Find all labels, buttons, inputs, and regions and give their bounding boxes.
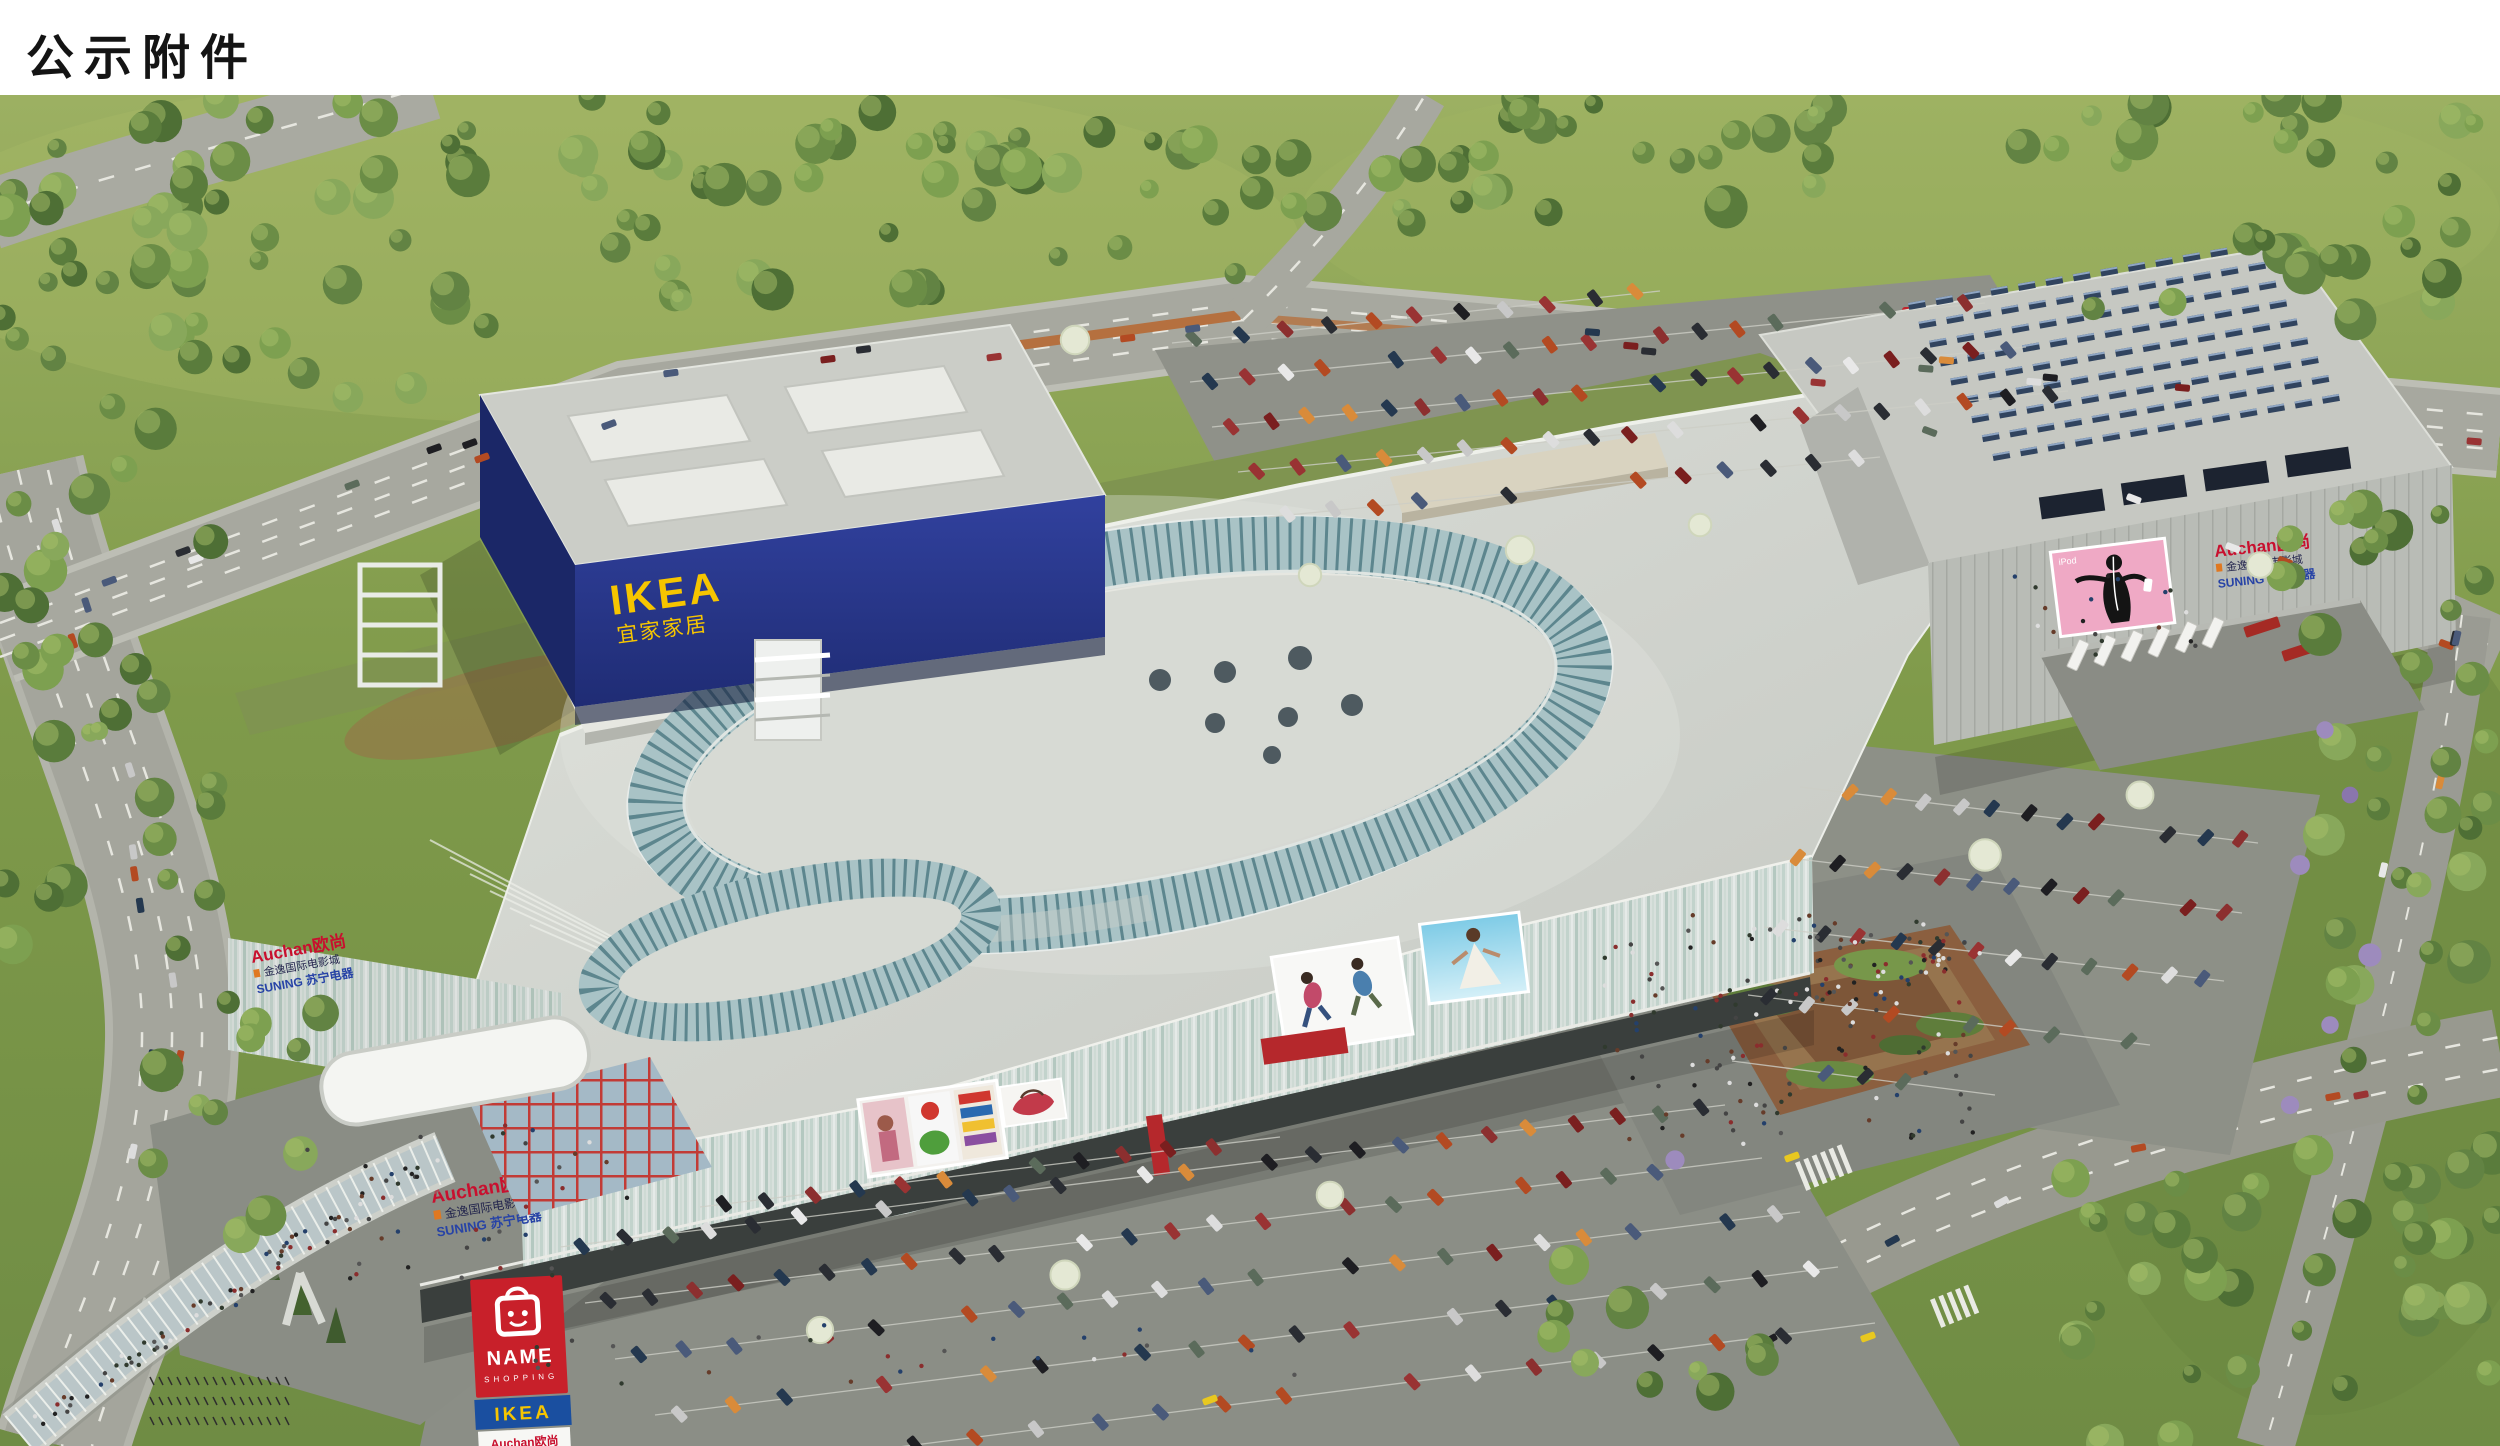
person — [2184, 610, 2188, 614]
tree-highlight — [2053, 1161, 2074, 1182]
billboard-ipod: iPod — [2050, 538, 2175, 636]
person — [276, 1261, 280, 1265]
person — [1728, 988, 1732, 992]
car — [1939, 356, 1955, 364]
person — [1960, 1120, 1964, 1124]
tree-highlight — [1305, 194, 1327, 216]
tree-highlight — [2086, 1302, 2097, 1313]
person — [1718, 1063, 1722, 1067]
person — [487, 1237, 491, 1241]
person — [208, 1301, 212, 1305]
person — [1714, 998, 1718, 1002]
tree-highlight — [1698, 1375, 1719, 1396]
tree-highlight — [2408, 1086, 2419, 1097]
person — [1805, 987, 1809, 991]
person — [1852, 980, 1856, 984]
tree-highlight — [648, 102, 661, 115]
person — [288, 1245, 292, 1249]
blossom-tree — [1299, 564, 1321, 586]
person — [119, 1354, 123, 1358]
person — [919, 1364, 923, 1368]
tree-highlight — [2484, 1207, 2499, 1222]
tree-highlight — [2165, 1172, 2179, 1186]
person — [536, 1366, 540, 1370]
person — [1914, 920, 1918, 924]
tree-highlight — [133, 246, 155, 268]
tree-highlight — [51, 239, 66, 254]
person — [1827, 990, 1831, 994]
person — [1792, 938, 1796, 942]
person — [1867, 1118, 1871, 1122]
person — [1731, 1128, 1735, 1132]
tree-highlight — [101, 395, 115, 409]
person — [185, 1328, 189, 1332]
person — [1953, 1042, 1957, 1046]
tree-highlight — [14, 643, 29, 658]
person — [1711, 940, 1715, 944]
tree-highlight — [1804, 144, 1822, 162]
person — [1629, 942, 1633, 946]
tree-highlight — [224, 347, 240, 363]
car — [1585, 328, 1601, 336]
person — [1820, 983, 1824, 987]
person — [62, 1395, 66, 1399]
tree-highlight — [2385, 1164, 2401, 1180]
person — [1738, 1099, 1742, 1103]
person — [1815, 935, 1819, 939]
tree-highlight — [2432, 506, 2442, 516]
person — [33, 1414, 37, 1418]
person — [65, 1409, 69, 1413]
person — [1783, 1046, 1787, 1050]
tree-highlight — [2466, 115, 2476, 125]
tree-highlight — [31, 193, 50, 212]
person — [68, 1403, 72, 1407]
tree-highlight — [2333, 1377, 2347, 1391]
person — [1820, 997, 1824, 1001]
person — [358, 1202, 362, 1206]
tree-highlight — [2090, 1214, 2100, 1224]
tree-highlight — [449, 156, 473, 180]
car — [2466, 437, 2482, 445]
tree-highlight — [159, 870, 171, 882]
person — [415, 1166, 419, 1170]
person — [2100, 639, 2104, 643]
tree-highlight — [938, 136, 948, 146]
person — [1733, 1002, 1737, 1006]
purple-shrub — [2342, 787, 2359, 804]
tree-highlight — [1473, 176, 1493, 196]
tree-highlight — [225, 1218, 245, 1238]
tree-highlight — [2159, 1422, 2179, 1442]
person — [1874, 1096, 1878, 1100]
tree-highlight — [2408, 873, 2422, 887]
person — [103, 1371, 107, 1375]
person — [1692, 1083, 1696, 1087]
tree-highlight — [618, 210, 630, 222]
person — [1762, 1103, 1766, 1107]
tree-highlight — [967, 132, 985, 150]
aerial-rendering: Auchan欧尚 金逸国际电影城 SUNING 苏宁电器 Auchan欧尚 金逸… — [0, 95, 2500, 1446]
tree-highlight — [671, 290, 683, 302]
person — [1946, 1051, 1950, 1055]
tree-highlight — [1723, 122, 1739, 138]
tree-highlight — [1141, 181, 1151, 191]
pylon-tenant-ikea: IKEA — [494, 1402, 552, 1426]
person — [625, 1196, 629, 1200]
person — [808, 1338, 812, 1342]
person — [1752, 927, 1756, 931]
person — [324, 1222, 328, 1226]
person — [1138, 1327, 1142, 1331]
tree-highlight — [656, 256, 671, 271]
person — [1848, 1024, 1852, 1028]
tree-highlight — [1282, 194, 1297, 209]
person — [1921, 922, 1925, 926]
person — [1727, 1081, 1731, 1085]
person — [239, 1293, 243, 1297]
tree-highlight — [1393, 200, 1404, 211]
person — [1691, 913, 1695, 917]
person — [573, 1152, 577, 1156]
tree-highlight — [977, 147, 1000, 170]
person — [1082, 1336, 1086, 1340]
tree-highlight — [1547, 1301, 1562, 1316]
person — [523, 1141, 527, 1145]
tree-highlight — [1440, 153, 1457, 170]
person — [1947, 957, 1951, 961]
person — [474, 1228, 478, 1232]
tree-highlight — [2285, 254, 2309, 278]
person — [2093, 632, 2097, 636]
person — [1734, 1016, 1738, 1020]
tree-highlight — [362, 157, 383, 178]
purple-shrub — [2281, 1096, 2299, 1114]
person — [137, 1352, 141, 1356]
tree-highlight — [1009, 129, 1021, 141]
tree-highlight — [561, 137, 583, 159]
tree-highlight — [2244, 103, 2255, 114]
tree-highlight — [1109, 236, 1123, 250]
tree-highlight — [1401, 148, 1421, 168]
person — [1941, 939, 1945, 943]
person — [354, 1272, 358, 1276]
person — [282, 1244, 286, 1248]
person — [360, 1194, 364, 1198]
person — [1941, 956, 1945, 960]
person — [523, 1233, 527, 1237]
person — [403, 1166, 407, 1170]
tree-highlight — [204, 1101, 218, 1115]
person — [1759, 1043, 1763, 1047]
person — [155, 1345, 159, 1349]
tree-highlight — [361, 101, 382, 122]
person — [303, 1229, 307, 1233]
tree-highlight — [1573, 1350, 1588, 1365]
tree-highlight — [2224, 1194, 2246, 1216]
tree-highlight — [261, 329, 278, 346]
person — [1836, 984, 1840, 988]
person — [305, 1148, 309, 1152]
person — [1729, 1049, 1733, 1053]
tree-highlight — [475, 315, 489, 329]
tree-highlight — [1243, 147, 1259, 163]
person — [250, 1289, 254, 1293]
tree-highlight — [325, 267, 347, 289]
person — [942, 1349, 946, 1353]
tree-highlight — [2449, 854, 2471, 876]
person — [1640, 1054, 1644, 1058]
person — [410, 1172, 414, 1176]
person — [1635, 1028, 1639, 1032]
tree-highlight — [2441, 105, 2461, 125]
person — [369, 1177, 373, 1181]
tree-highlight — [122, 655, 140, 673]
person — [1905, 978, 1909, 982]
person — [2036, 624, 2040, 628]
person — [1603, 956, 1607, 960]
tree-highlight — [285, 1138, 304, 1157]
tree-highlight — [252, 225, 268, 241]
person — [357, 1262, 361, 1266]
person — [1660, 986, 1664, 990]
person — [1779, 1100, 1783, 1104]
blossom-tree — [1506, 536, 1534, 564]
person — [228, 1288, 232, 1292]
person — [1874, 992, 1878, 996]
person — [1971, 1130, 1975, 1134]
person — [1745, 978, 1749, 982]
person — [822, 1323, 826, 1327]
person — [137, 1363, 141, 1367]
person — [1945, 932, 1949, 936]
tree-highlight — [1699, 146, 1712, 159]
person — [1690, 1063, 1694, 1067]
person — [1718, 994, 1722, 998]
person — [85, 1394, 89, 1398]
tree-highlight — [251, 252, 261, 262]
tree-highlight — [190, 1095, 202, 1107]
tree-highlight — [2377, 153, 2389, 165]
person — [1794, 992, 1798, 996]
person — [898, 1369, 902, 1373]
tree-highlight — [145, 824, 164, 843]
person — [1741, 1054, 1745, 1058]
person — [1741, 1142, 1745, 1146]
tree-highlight — [290, 359, 308, 377]
person — [557, 1165, 561, 1169]
tree-highlight — [2062, 1326, 2082, 1346]
tree-highlight — [2367, 747, 2382, 762]
tree-highlight — [754, 271, 777, 294]
person — [2157, 625, 2161, 629]
person — [379, 1236, 383, 1240]
tree-highlight — [1586, 96, 1596, 106]
tree-highlight — [1399, 210, 1414, 225]
tree-highlight — [2008, 131, 2027, 150]
tree-highlight — [821, 119, 833, 131]
person — [367, 1217, 371, 1221]
person — [550, 1266, 554, 1270]
person — [991, 1337, 995, 1341]
tree-highlight — [180, 342, 199, 361]
person — [389, 1172, 393, 1176]
tree-highlight — [2478, 1362, 2492, 1376]
person — [1884, 962, 1888, 966]
person — [279, 1249, 283, 1253]
tree-highlight — [218, 992, 231, 1005]
person — [707, 1370, 711, 1374]
tree-highlight — [7, 492, 21, 506]
tree-highlight — [2475, 730, 2488, 743]
person — [1750, 937, 1754, 941]
purple-shrub — [2358, 943, 2381, 966]
pylon-brand: NAME — [486, 1345, 554, 1370]
person — [2189, 639, 2193, 643]
person — [279, 1253, 283, 1257]
blossom-tree — [1969, 839, 2001, 871]
person — [333, 1229, 337, 1233]
tree-highlight — [2441, 601, 2453, 613]
tree-highlight — [2045, 137, 2059, 151]
pylon-sign-main: NAME SHOPPING IKEA Auchan欧尚 金逸国际电影城 SUNI… — [468, 1275, 575, 1446]
blossom-tree — [2247, 552, 2273, 578]
person — [99, 1382, 103, 1386]
tree-highlight — [2118, 120, 2142, 144]
tree-highlight — [80, 624, 99, 643]
tree-highlight — [1145, 133, 1155, 143]
tree-highlight — [796, 165, 812, 181]
tree-highlight — [172, 168, 193, 189]
person — [611, 1344, 615, 1348]
tree-highlight — [2394, 1256, 2407, 1269]
tree-highlight — [2442, 219, 2459, 236]
person — [1631, 999, 1635, 1003]
car — [2043, 373, 2059, 381]
person — [1936, 953, 1940, 957]
tree-highlight — [48, 140, 59, 151]
tree-highlight — [169, 213, 192, 236]
person — [2089, 597, 2093, 601]
blossom-tree — [1317, 1182, 1344, 1209]
person — [535, 1179, 539, 1183]
tree-highlight — [1182, 127, 1203, 148]
person — [110, 1378, 114, 1382]
person — [2033, 585, 2037, 589]
tree-highlight — [1371, 157, 1391, 177]
tree-highlight — [631, 133, 649, 151]
tree-highlight — [2326, 919, 2344, 937]
tree-highlight — [71, 476, 94, 499]
person — [849, 1379, 853, 1383]
car — [2175, 384, 2191, 392]
blossom-tree — [1061, 326, 1089, 354]
person — [168, 1338, 172, 1342]
person — [232, 1288, 236, 1292]
person — [1848, 1002, 1852, 1006]
person — [886, 1354, 890, 1358]
person — [161, 1334, 165, 1338]
tree-highlight — [1551, 1247, 1573, 1269]
person — [325, 1240, 329, 1244]
person — [2163, 590, 2167, 594]
tree-highlight — [2393, 1200, 2414, 1221]
tree-highlight — [137, 410, 160, 433]
tree-highlight — [140, 1150, 156, 1166]
tree-highlight — [40, 274, 51, 285]
person — [1627, 1137, 1631, 1141]
tree-highlight — [1608, 1288, 1632, 1312]
tree-highlight — [2450, 943, 2474, 967]
tree-highlight — [63, 262, 77, 276]
person — [2193, 644, 2197, 648]
tree-highlight — [907, 134, 922, 149]
person — [1899, 975, 1903, 979]
person — [1942, 969, 1946, 973]
person — [1292, 1373, 1296, 1377]
tree-highlight — [2130, 1264, 2148, 1282]
person — [1652, 1010, 1656, 1014]
tree-highlight — [2295, 1137, 2317, 1159]
tree-highlight — [36, 884, 52, 900]
person — [501, 1131, 505, 1135]
person — [152, 1340, 156, 1344]
person — [1634, 1021, 1638, 1025]
person — [1754, 1012, 1758, 1016]
tree-highlight — [2439, 174, 2452, 187]
person — [1907, 982, 1911, 986]
tree-highlight — [2335, 1201, 2357, 1223]
person — [354, 1216, 358, 1220]
tree-highlight — [748, 172, 768, 192]
tree-highlight — [2331, 502, 2345, 516]
tree-highlight — [1050, 248, 1060, 258]
person — [194, 1313, 198, 1317]
tree-highlight — [112, 457, 127, 472]
car — [1623, 342, 1639, 350]
tree-highlight — [137, 780, 159, 802]
tree-highlight — [2457, 664, 2476, 683]
person — [1931, 959, 1935, 963]
tree-highlight — [1634, 143, 1646, 155]
person — [1854, 997, 1858, 1001]
tree-highlight — [288, 1039, 301, 1052]
tree-highlight — [2328, 968, 2347, 987]
tree-highlight — [205, 191, 219, 205]
tree-highlight — [891, 272, 912, 293]
blossom-tree — [1689, 514, 1712, 537]
tree-highlight — [198, 792, 214, 808]
person — [1911, 1133, 1915, 1137]
person — [756, 1335, 760, 1339]
person — [1603, 1045, 1607, 1049]
person — [308, 1246, 312, 1250]
person — [348, 1227, 352, 1231]
person — [1841, 957, 1845, 961]
purple-shrub — [2290, 855, 2310, 875]
tree-highlight — [7, 328, 20, 341]
person — [1871, 1035, 1875, 1039]
person — [1876, 974, 1880, 978]
billboard-fashion-model — [1419, 912, 1528, 1004]
car — [2026, 378, 2042, 386]
person — [276, 1266, 280, 1270]
person — [1932, 955, 1936, 959]
person — [1921, 1045, 1925, 1049]
person — [1122, 1352, 1126, 1356]
person — [1923, 1071, 1927, 1075]
person — [550, 1273, 554, 1277]
